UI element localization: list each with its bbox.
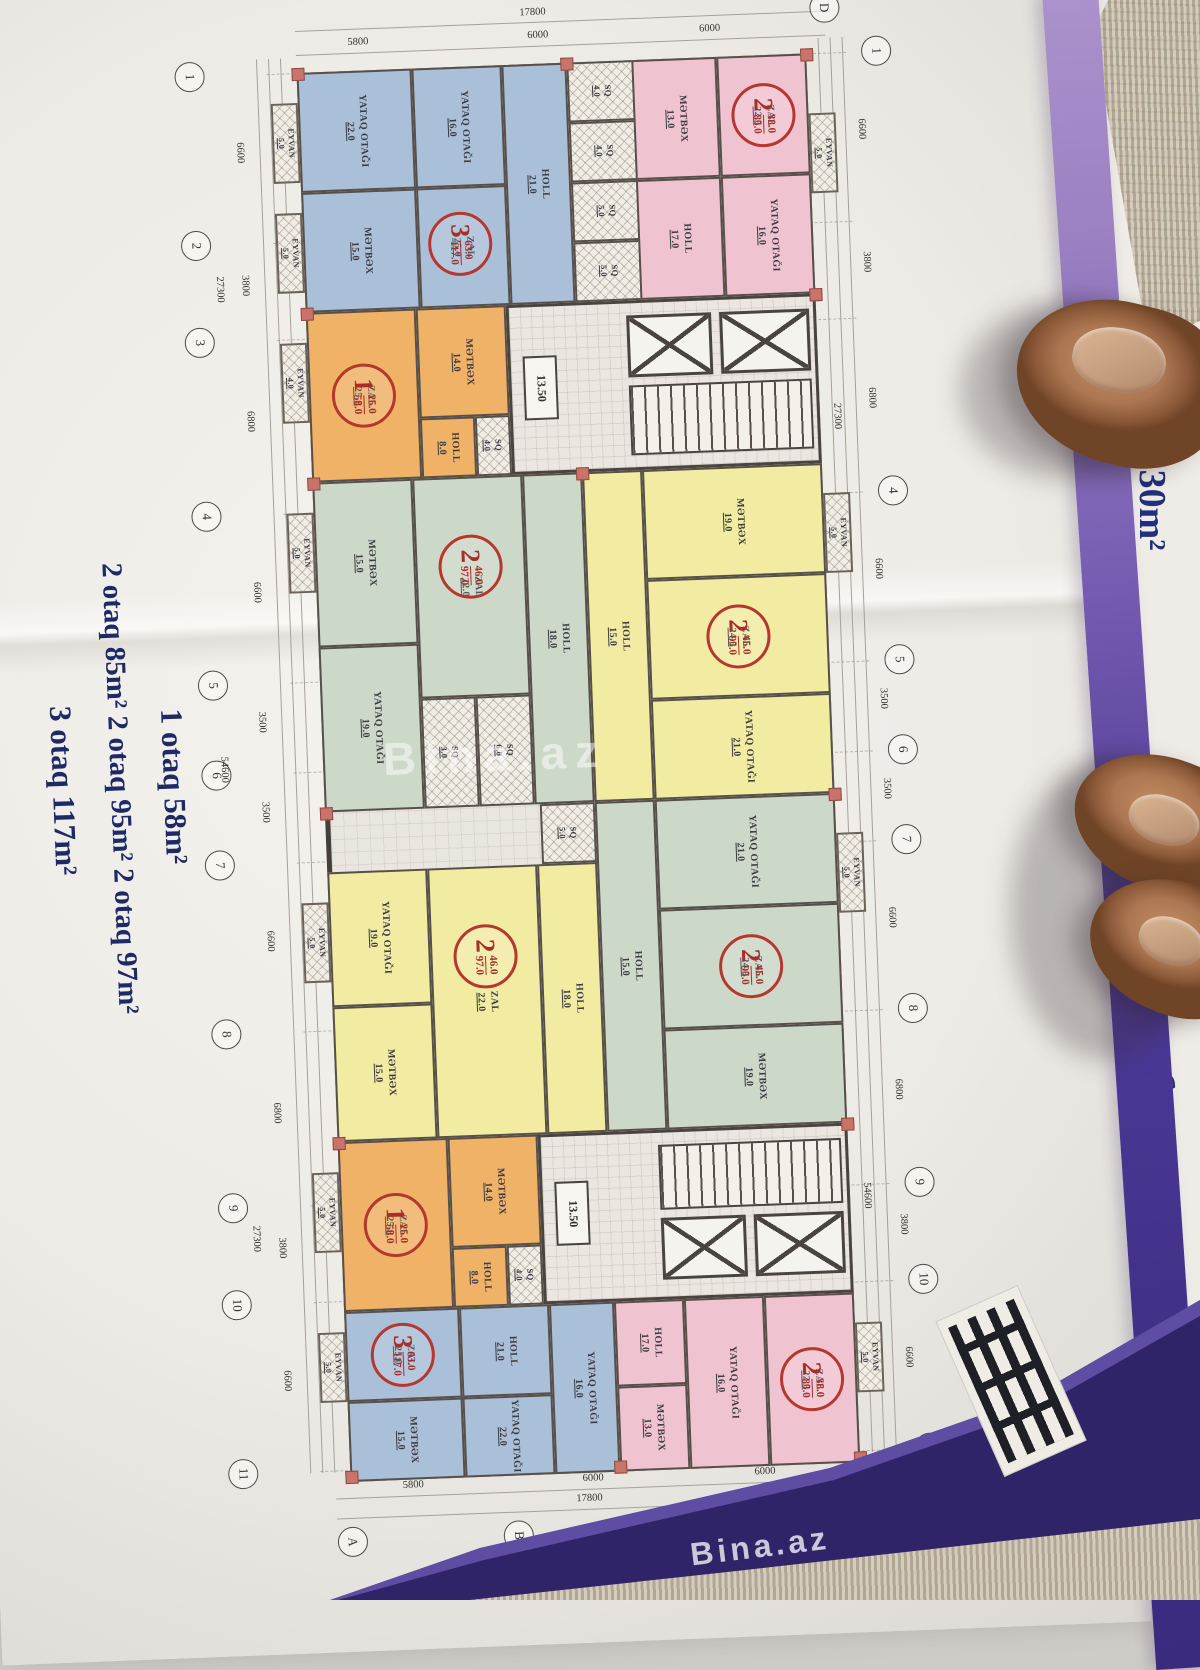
dim-label: 6000: [699, 23, 720, 35]
grid-bubble-bottom: D: [847, 1507, 878, 1538]
grid-bubble-left: 4: [191, 501, 222, 532]
wall-accent: [307, 477, 320, 490]
wall-accent: [560, 57, 573, 70]
level-mark: 13.50: [523, 355, 559, 420]
balcony-eyvan: EYVAN5.0: [823, 492, 853, 573]
room-holl: HOLL21.0: [459, 1304, 552, 1397]
room-holl: HOLL17.0: [614, 1299, 687, 1387]
grid-bubble-right: 5: [884, 644, 915, 675]
room-sq: SQ4.0: [566, 60, 638, 123]
dim-line: [337, 1498, 882, 1520]
watermark: Bina.az: [382, 724, 608, 787]
room-yataq-otagi: YATAQ OTAĞI16.0: [411, 65, 506, 188]
dim-label: 6000: [754, 1466, 775, 1478]
room-yataq-otagi: YATAQ OTAĞI19.0: [327, 869, 432, 1008]
grid-bubble-left: 3: [184, 327, 215, 358]
dim-label: 3500: [256, 712, 268, 733]
room-metbex: MƏTBƏX15.0: [348, 1398, 466, 1482]
room-holl: HOLL8.0: [452, 1246, 509, 1308]
wall-accent: [345, 1471, 358, 1484]
room-yataq-otagi: YATAQ OTAĞI16.0: [684, 1296, 770, 1469]
grid-bubble-left: 9: [217, 1193, 248, 1224]
balcony-eyvan: EYVAN5.0: [271, 103, 301, 184]
dim-line: [295, 11, 825, 32]
staircase-icon: [629, 378, 815, 455]
dim-label: 6600: [234, 142, 246, 163]
dim-label: 6600: [264, 930, 276, 951]
dim-label: 3500: [881, 778, 893, 799]
dim-total: 27300: [250, 1226, 262, 1253]
wall-accent: [614, 1460, 627, 1473]
room-yataq-otagi: YATAQ OTAĞI22.0: [462, 1394, 555, 1477]
dim-label: 6600: [873, 558, 885, 579]
dim-label: 6000: [527, 29, 548, 41]
wall-accent: [301, 308, 314, 321]
room-sq: SQ5.0: [573, 240, 645, 303]
grid-bubble-left: 7: [204, 850, 235, 881]
wall-accent: [828, 788, 841, 801]
dim-label: 6600: [886, 907, 898, 928]
room-sq: SQ4.0: [569, 120, 641, 183]
room-holl: HOLL8.0: [420, 416, 477, 478]
room-yataq-otagi: YATAQ OTAĞI21.0: [651, 693, 835, 800]
dim-line: [296, 35, 826, 56]
wall-accent: [576, 467, 589, 480]
room-holl: HOLL21.0: [501, 63, 575, 305]
grid-bubble-left: 10: [221, 1290, 252, 1321]
grid-bubble-right: 10: [908, 1263, 939, 1294]
staircase-icon: [658, 1138, 843, 1210]
dim-label: 3500: [259, 802, 271, 823]
elevator-icon: [661, 1215, 748, 1280]
dim-total: 17800: [519, 6, 546, 18]
room-holl: HOLL17.0: [636, 177, 726, 300]
room-metbex: MƏTBƏX15.0: [301, 188, 421, 312]
dim-label: 5800: [347, 36, 368, 48]
room-yataq-otagi: YATAQ OTAĞI22.0: [297, 69, 417, 193]
balcony-eyvan: EYVAN5.0: [808, 112, 838, 193]
dim-total: 54600: [861, 1182, 873, 1209]
dim-label: 6800: [271, 1102, 283, 1123]
grid-bubble-top: D: [809, 0, 840, 23]
floor-plan: YATAQ OTAĞI22.0 YATAQ OTAĞI16.0 MƏTBƏX15…: [164, 0, 983, 1577]
grid-bubble-right: 11: [914, 1432, 945, 1463]
grid-bubble-left: 5: [197, 670, 228, 701]
room-sq: SQ5.0: [571, 180, 643, 243]
wall-accent: [809, 288, 822, 301]
room-metbex: MƏTBƏX19.0: [664, 1023, 848, 1130]
grid-bubble-right: 6: [887, 734, 918, 765]
balcony-eyvan: EYVAN5.0: [301, 902, 331, 983]
room-metbex: MƏTBƏX14.0: [416, 305, 510, 418]
dim-label: 6800: [893, 1078, 905, 1099]
dim-label: 6600: [856, 118, 868, 139]
grid-bubble-left: 2: [181, 230, 212, 261]
dim-total: 27300: [831, 403, 843, 430]
grid-bubble-bottom: A: [337, 1526, 368, 1557]
elevator-icon: [719, 308, 811, 373]
level-mark: 13.50: [554, 1181, 590, 1246]
dim-label: 3800: [239, 275, 251, 296]
room-yataq-otagi: YATAQ OTAĞI19.0: [319, 644, 425, 813]
wall-accent: [854, 1451, 867, 1464]
room-yataq-otagi: YATAQ OTAĞI16.0: [721, 173, 816, 296]
dim-label: 6600: [281, 1370, 293, 1391]
room-metbex: MƏTBƏX19.0: [642, 463, 826, 580]
grid-bubble-right: 7: [891, 824, 922, 855]
dim-label: 6600: [251, 582, 263, 603]
dim-label: 6800: [244, 411, 256, 432]
balcony-eyvan: EYVAN4.0: [280, 343, 310, 424]
wall-accent: [841, 1117, 854, 1130]
dim-label: 6000: [582, 1472, 603, 1484]
dim-label: 3800: [276, 1237, 288, 1258]
balcony-eyvan: EYVAN5.0: [318, 1332, 348, 1403]
wall-accent: [800, 48, 813, 61]
room-sq: SQ4.0: [475, 415, 512, 476]
room-metbex: MƏTBƏX13.0: [617, 1384, 690, 1472]
wall-accent: [332, 1137, 345, 1150]
room-yataq-otagi: YATAQ OTAĞI16.0: [549, 1302, 620, 1474]
room-metbex: MƏTBƏX13.0: [631, 57, 721, 180]
dim-label: 5800: [403, 1479, 424, 1491]
balcony-eyvan: EYVAN5.0: [286, 513, 316, 594]
dim-label: 3500: [878, 688, 890, 709]
grid-bubble-right: 1: [861, 35, 892, 66]
grid-bubble-left: 8: [211, 1019, 242, 1050]
grid-bubble-right: 4: [877, 475, 908, 506]
room-sq: SQ5.0: [540, 802, 597, 864]
room-yataq-otagi: YATAQ OTAĞI21.0: [655, 793, 839, 910]
balcony-eyvan: EYVAN5.0: [855, 1321, 885, 1392]
elevator-icon: [754, 1211, 846, 1276]
dim-total: 17800: [576, 1492, 603, 1504]
grid-bubble-left: 11: [228, 1459, 259, 1490]
grid-bubble-bottom: B: [503, 1520, 534, 1551]
balcony-eyvan: EYVAN5.0: [312, 1172, 342, 1253]
dim-label: 3800: [898, 1213, 910, 1234]
grid-bubble-right: 8: [897, 992, 928, 1023]
dim-label: 6800: [866, 387, 878, 408]
balcony-eyvan: EYVAN5.0: [275, 213, 305, 294]
room-metbex: MƏTBƏX14.0: [448, 1135, 542, 1248]
wall-accent: [291, 68, 304, 81]
room-holl: HOLL18.0: [537, 862, 607, 1134]
room-metbex: MƏTBƏX15.0: [332, 1003, 437, 1142]
dim-label: 6600: [903, 1346, 915, 1367]
room-zal: ZAL22.0: [427, 864, 547, 1138]
grid-bubble-left: 1: [174, 62, 205, 93]
room-sq: SQ4.0: [507, 1244, 544, 1305]
room-metbex: MƏTBƏX15.0: [312, 479, 418, 648]
grid-bubble-right: 9: [904, 1166, 935, 1197]
dim-label: 3800: [861, 251, 873, 272]
balcony-eyvan: EYVAN5.0: [836, 832, 866, 913]
dim-total: 54600: [218, 756, 230, 783]
wall-accent: [320, 807, 333, 820]
dim-total: 27300: [214, 276, 226, 303]
elevator-icon: [626, 312, 713, 377]
